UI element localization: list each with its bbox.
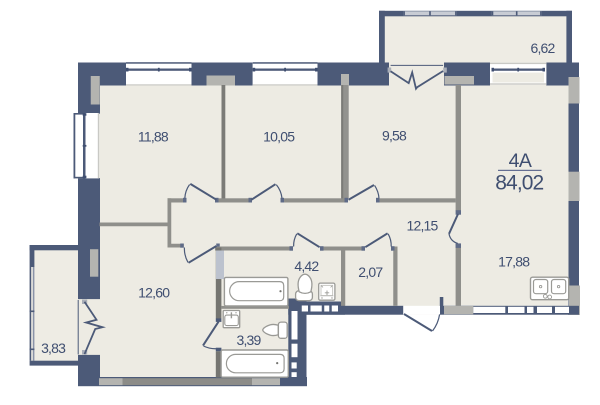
svg-text:12,15: 12,15 [406, 217, 438, 233]
svg-text:11,88: 11,88 [138, 128, 169, 144]
svg-text:17,88: 17,88 [498, 253, 530, 269]
svg-text:12,60: 12,60 [138, 285, 170, 301]
svg-text:10,05: 10,05 [263, 128, 295, 144]
svg-text:3,39: 3,39 [236, 332, 261, 348]
svg-text:9,58: 9,58 [382, 128, 407, 144]
svg-text:3,83: 3,83 [41, 340, 66, 356]
svg-text:4,42: 4,42 [294, 258, 319, 274]
svg-text:6,62: 6,62 [530, 40, 555, 56]
svg-text:2,07: 2,07 [358, 264, 383, 280]
svg-text:4A: 4A [509, 150, 532, 172]
svg-text:84,02: 84,02 [495, 172, 543, 195]
